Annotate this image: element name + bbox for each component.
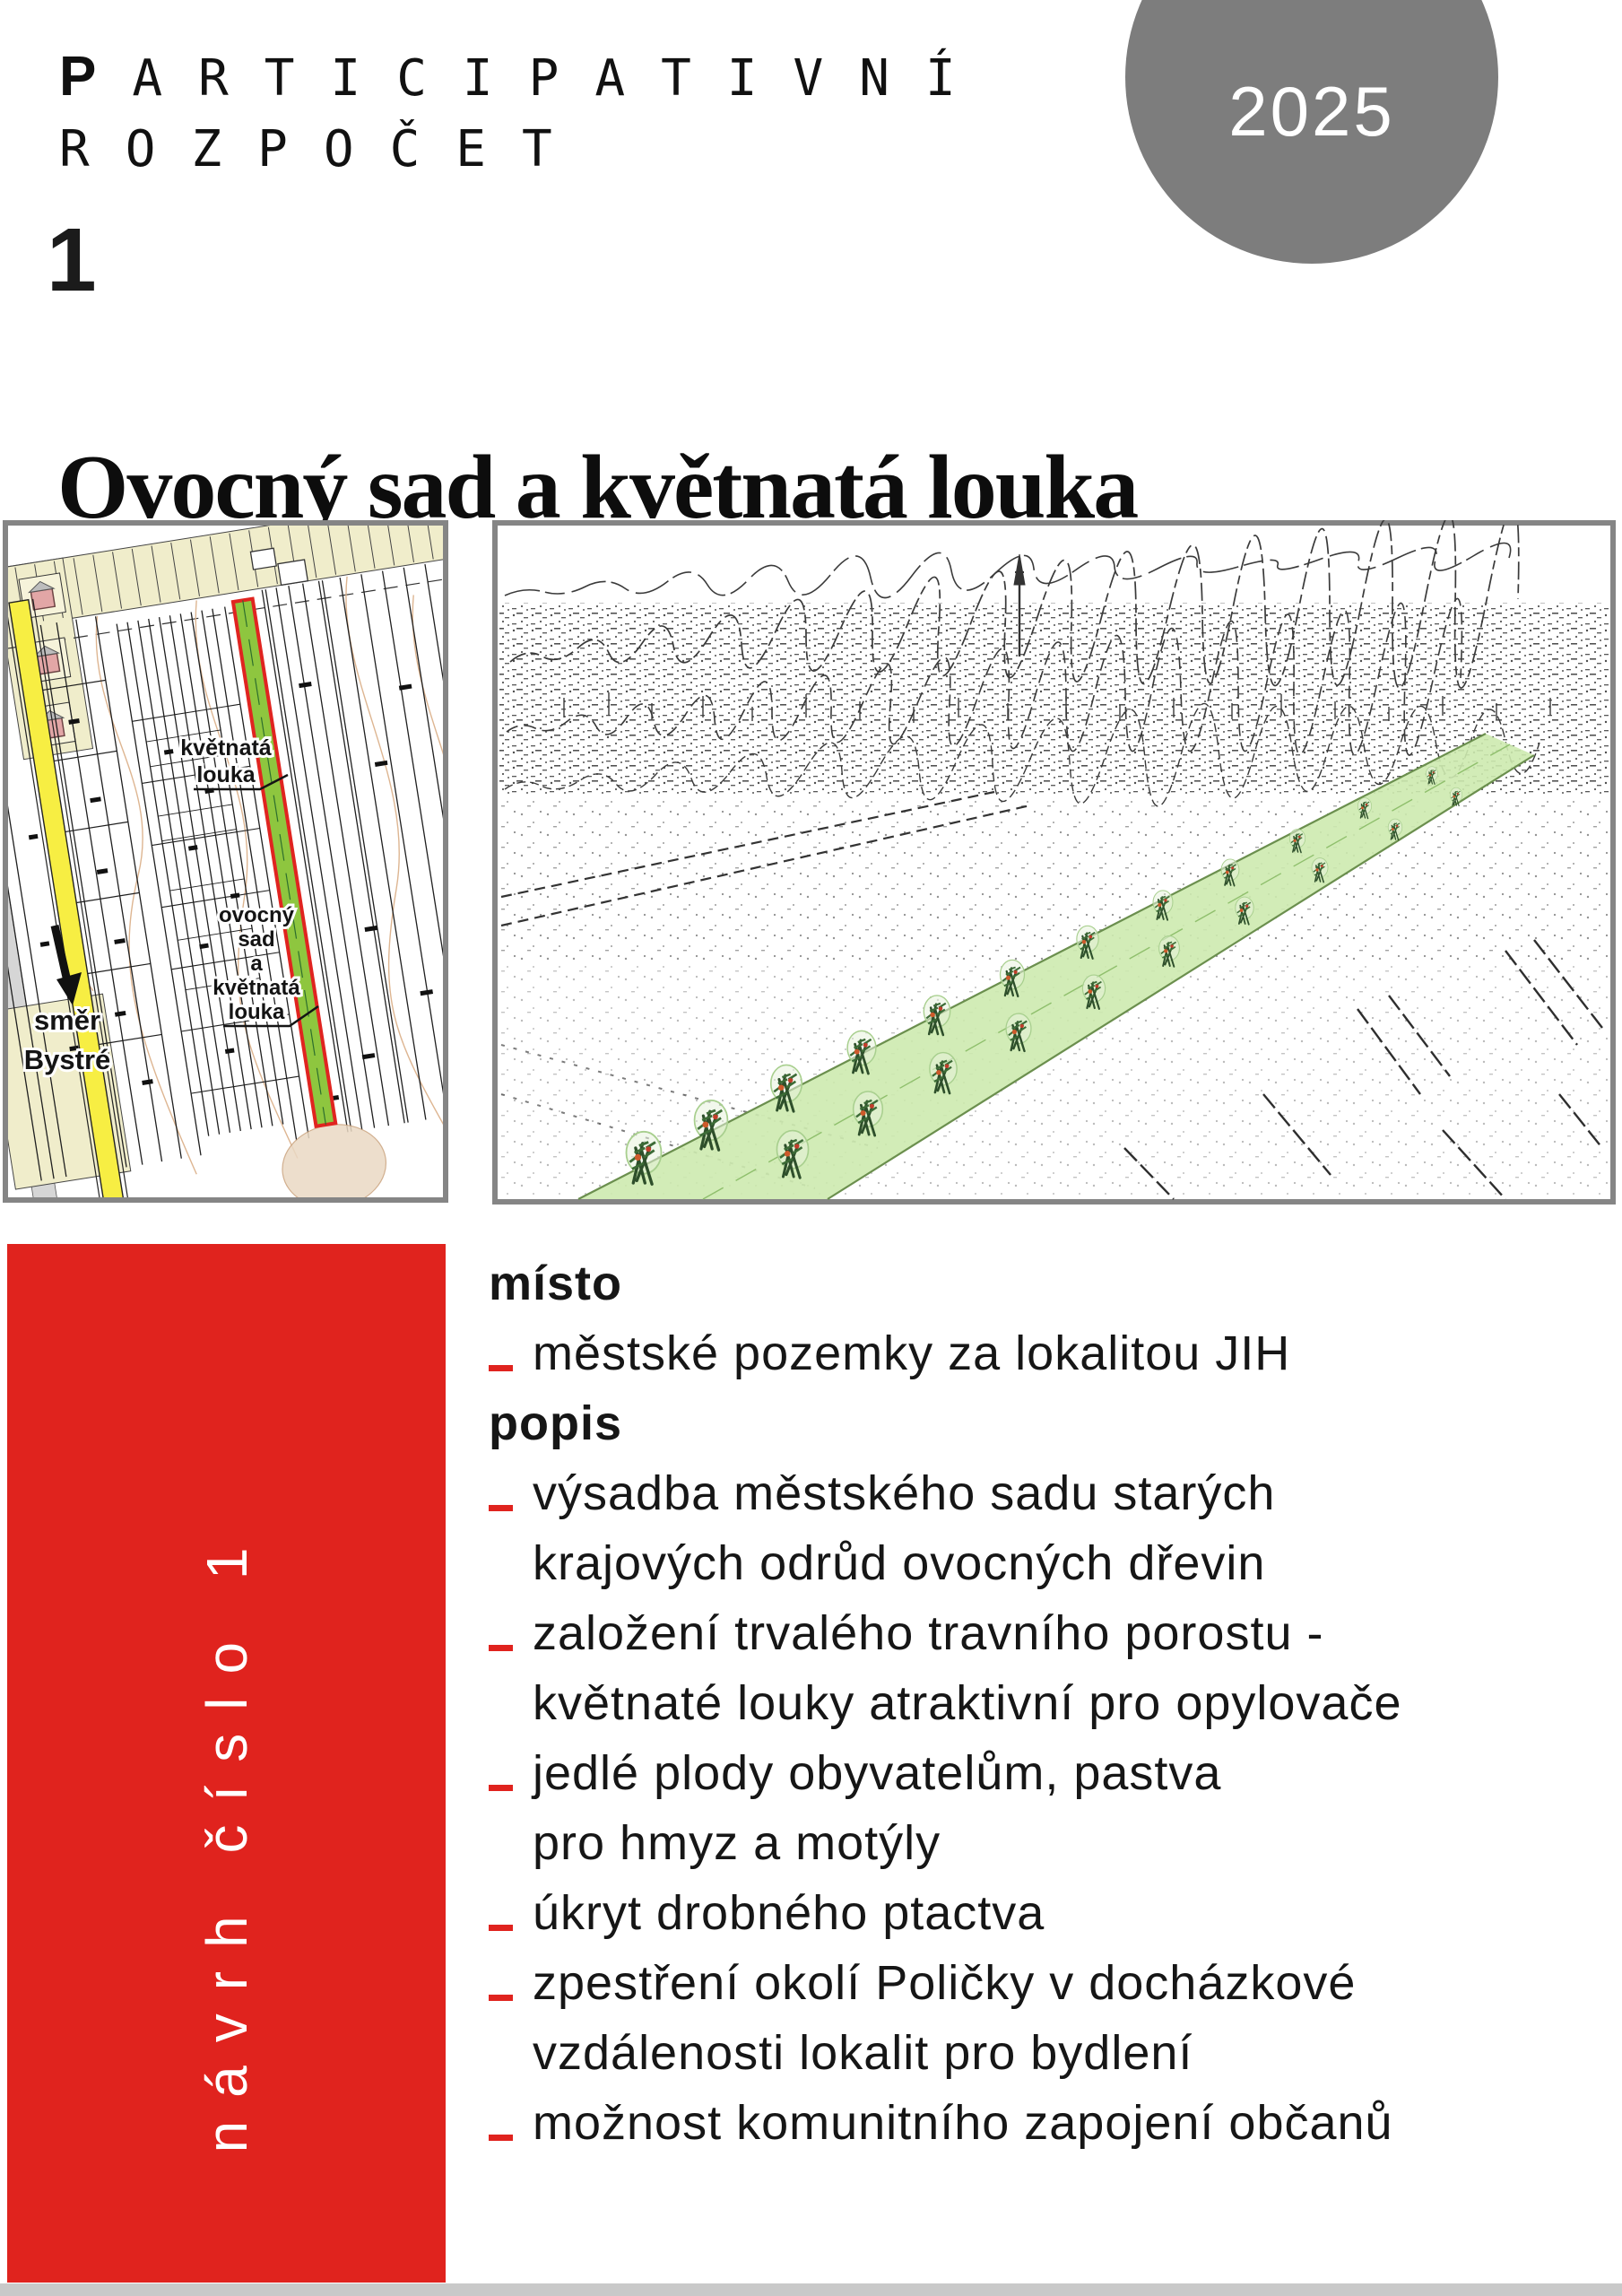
content-list: místo městské pozemky za lokalitou JIH p… bbox=[489, 1248, 1609, 2158]
map-label-orchard-line3: a bbox=[250, 952, 263, 976]
orchard-visualisation-sketch bbox=[492, 520, 1616, 1205]
list-item: výsadba městského sadu starých bbox=[489, 1458, 1609, 1528]
logo-initial: P bbox=[59, 46, 132, 108]
proposal-number: 1 bbox=[47, 215, 97, 305]
page-edge-strip bbox=[0, 2283, 1622, 2296]
red-dash-bullet bbox=[489, 1785, 513, 1791]
red-dash-bullet bbox=[489, 1925, 513, 1931]
indent-spacer bbox=[489, 1668, 533, 1669]
heading-text: popis bbox=[489, 1388, 622, 1458]
list-item: jedlé plody obyvatelům, pastva bbox=[489, 1738, 1609, 1808]
cadastral-map: květnatá louka ovocný sad a květnatá lou… bbox=[3, 520, 448, 1203]
map-label-meadow-line2: louka bbox=[196, 762, 256, 787]
map-label-direction-line2: Bystré bbox=[24, 1044, 111, 1075]
map-label-orchard-line4: květnatá bbox=[213, 976, 300, 1000]
indent-spacer bbox=[489, 1808, 533, 1809]
red-dash-bullet bbox=[489, 2135, 513, 2141]
section-heading-misto: místo bbox=[489, 1248, 1609, 1318]
map-label-meadow-line1: květnatá bbox=[180, 735, 272, 761]
list-item: zpestření okolí Poličky v docházkové bbox=[489, 1948, 1609, 2018]
indent-spacer bbox=[489, 1528, 533, 1529]
sidebar-vertical-label: návrh číslo 1 bbox=[194, 1525, 260, 2153]
year-badge-label: 2025 bbox=[1125, 75, 1498, 147]
heading-text: místo bbox=[489, 1248, 622, 1318]
list-item: možnost komunitního zapojení občanů bbox=[489, 2088, 1609, 2158]
list-item-continuation: pro hmyz a motýly bbox=[489, 1808, 1609, 1878]
logo-line1: PARTICIPATIVNÍ bbox=[59, 41, 992, 114]
map-label-direction-line1: směr bbox=[34, 1004, 100, 1036]
sidebar-block: návrh číslo 1 bbox=[7, 1244, 446, 2283]
indent-spacer bbox=[489, 2018, 533, 2019]
list-item-continuation: krajových odrůd ovocných dřevin bbox=[489, 1528, 1609, 1598]
red-dash-bullet bbox=[489, 1645, 513, 1651]
list-item-continuation: květnaté louky atraktivní pro opylovače bbox=[489, 1668, 1609, 1738]
section-heading-popis: popis bbox=[489, 1388, 1609, 1458]
year-badge: 2025 bbox=[1125, 0, 1498, 264]
list-item: založení trvalého travního porostu - bbox=[489, 1598, 1609, 1668]
list-item-continuation: vzdálenosti lokalit pro bydlení bbox=[489, 2018, 1609, 2088]
logo-line1-rest: ARTICIPATIVNÍ bbox=[132, 49, 991, 108]
red-dash-bullet bbox=[489, 1995, 513, 2001]
map-label-orchard-line1: ovocný bbox=[219, 903, 295, 927]
red-dash-bullet bbox=[489, 1365, 513, 1371]
red-dash-bullet bbox=[489, 1505, 513, 1511]
list-item: městské pozemky za lokalitou JIH bbox=[489, 1318, 1609, 1388]
map-label-orchard-line2: sad bbox=[238, 927, 274, 952]
list-item: úkryt drobného ptactva bbox=[489, 1878, 1609, 1948]
logo-line2: ROZPOČET bbox=[59, 114, 992, 185]
poster-page: PARTICIPATIVNÍ ROZPOČET 2025 1 Ovocný sa… bbox=[0, 0, 1622, 2296]
map-label-orchard-line5: louka bbox=[229, 1000, 285, 1024]
logo: PARTICIPATIVNÍ ROZPOČET bbox=[59, 41, 992, 185]
